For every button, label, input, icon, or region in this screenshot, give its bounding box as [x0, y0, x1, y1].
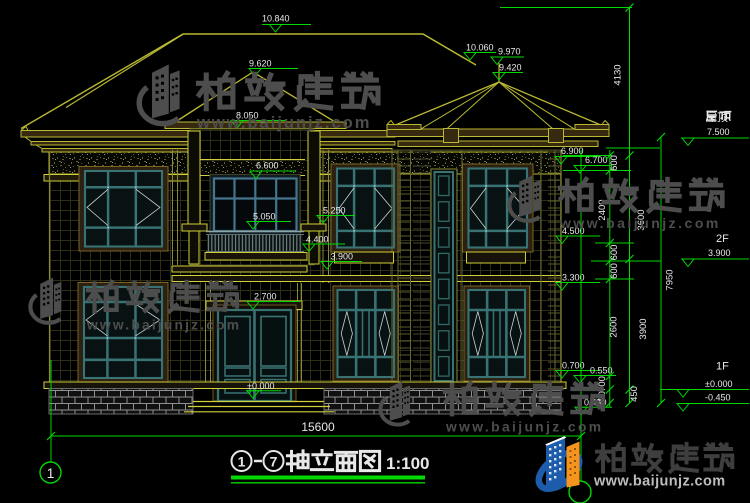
svg-text:www.baijunjz.com: www.baijunjz.com — [86, 318, 241, 333]
svg-text:www.baijunjz.com: www.baijunjz.com — [196, 114, 371, 132]
svg-text:7: 7 — [270, 454, 278, 470]
svg-text:6.900: 6.900 — [561, 146, 584, 156]
svg-text:3.900: 3.900 — [331, 252, 354, 262]
svg-text:5.050: 5.050 — [253, 212, 276, 222]
svg-text:9.620: 9.620 — [249, 59, 272, 69]
svg-text:±0.000: ±0.000 — [705, 379, 732, 389]
svg-text:1: 1 — [47, 465, 55, 481]
svg-text:10.840: 10.840 — [262, 14, 290, 24]
svg-text:10.060: 10.060 — [466, 43, 494, 53]
svg-text:6.700: 6.700 — [585, 155, 608, 165]
svg-text:2600: 2600 — [609, 316, 620, 337]
svg-text:4130: 4130 — [613, 64, 624, 85]
svg-text:7950: 7950 — [665, 269, 676, 290]
svg-text:450: 450 — [629, 386, 640, 402]
svg-text:9.970: 9.970 — [498, 47, 521, 57]
svg-text:3900: 3900 — [638, 318, 649, 339]
svg-text:5.250: 5.250 — [323, 206, 346, 216]
svg-text:600: 600 — [609, 155, 620, 171]
svg-text:www.baijunjz.com: www.baijunjz.com — [445, 420, 603, 435]
svg-text:-0.450: -0.450 — [705, 393, 731, 403]
svg-text:0.550: 0.550 — [590, 366, 613, 376]
svg-text:2.700: 2.700 — [254, 292, 277, 302]
svg-text:600: 600 — [609, 245, 620, 261]
svg-text:2F: 2F — [716, 233, 729, 245]
svg-text:9.420: 9.420 — [499, 63, 522, 73]
svg-text:3.900: 3.900 — [708, 248, 731, 258]
svg-text:1:100: 1:100 — [386, 454, 429, 473]
svg-text:1: 1 — [238, 454, 246, 470]
svg-text:15600: 15600 — [301, 420, 335, 434]
svg-text:±0.000: ±0.000 — [247, 381, 274, 391]
svg-text:4.400: 4.400 — [306, 235, 329, 245]
svg-text:1F: 1F — [716, 361, 729, 373]
svg-text:www.baijunjz.com: www.baijunjz.com — [593, 474, 726, 490]
svg-text:7.500: 7.500 — [707, 127, 730, 137]
svg-text:www.baijunjz.com: www.baijunjz.com — [559, 215, 721, 231]
svg-text:6.600: 6.600 — [256, 161, 279, 171]
svg-text:600: 600 — [609, 263, 620, 279]
